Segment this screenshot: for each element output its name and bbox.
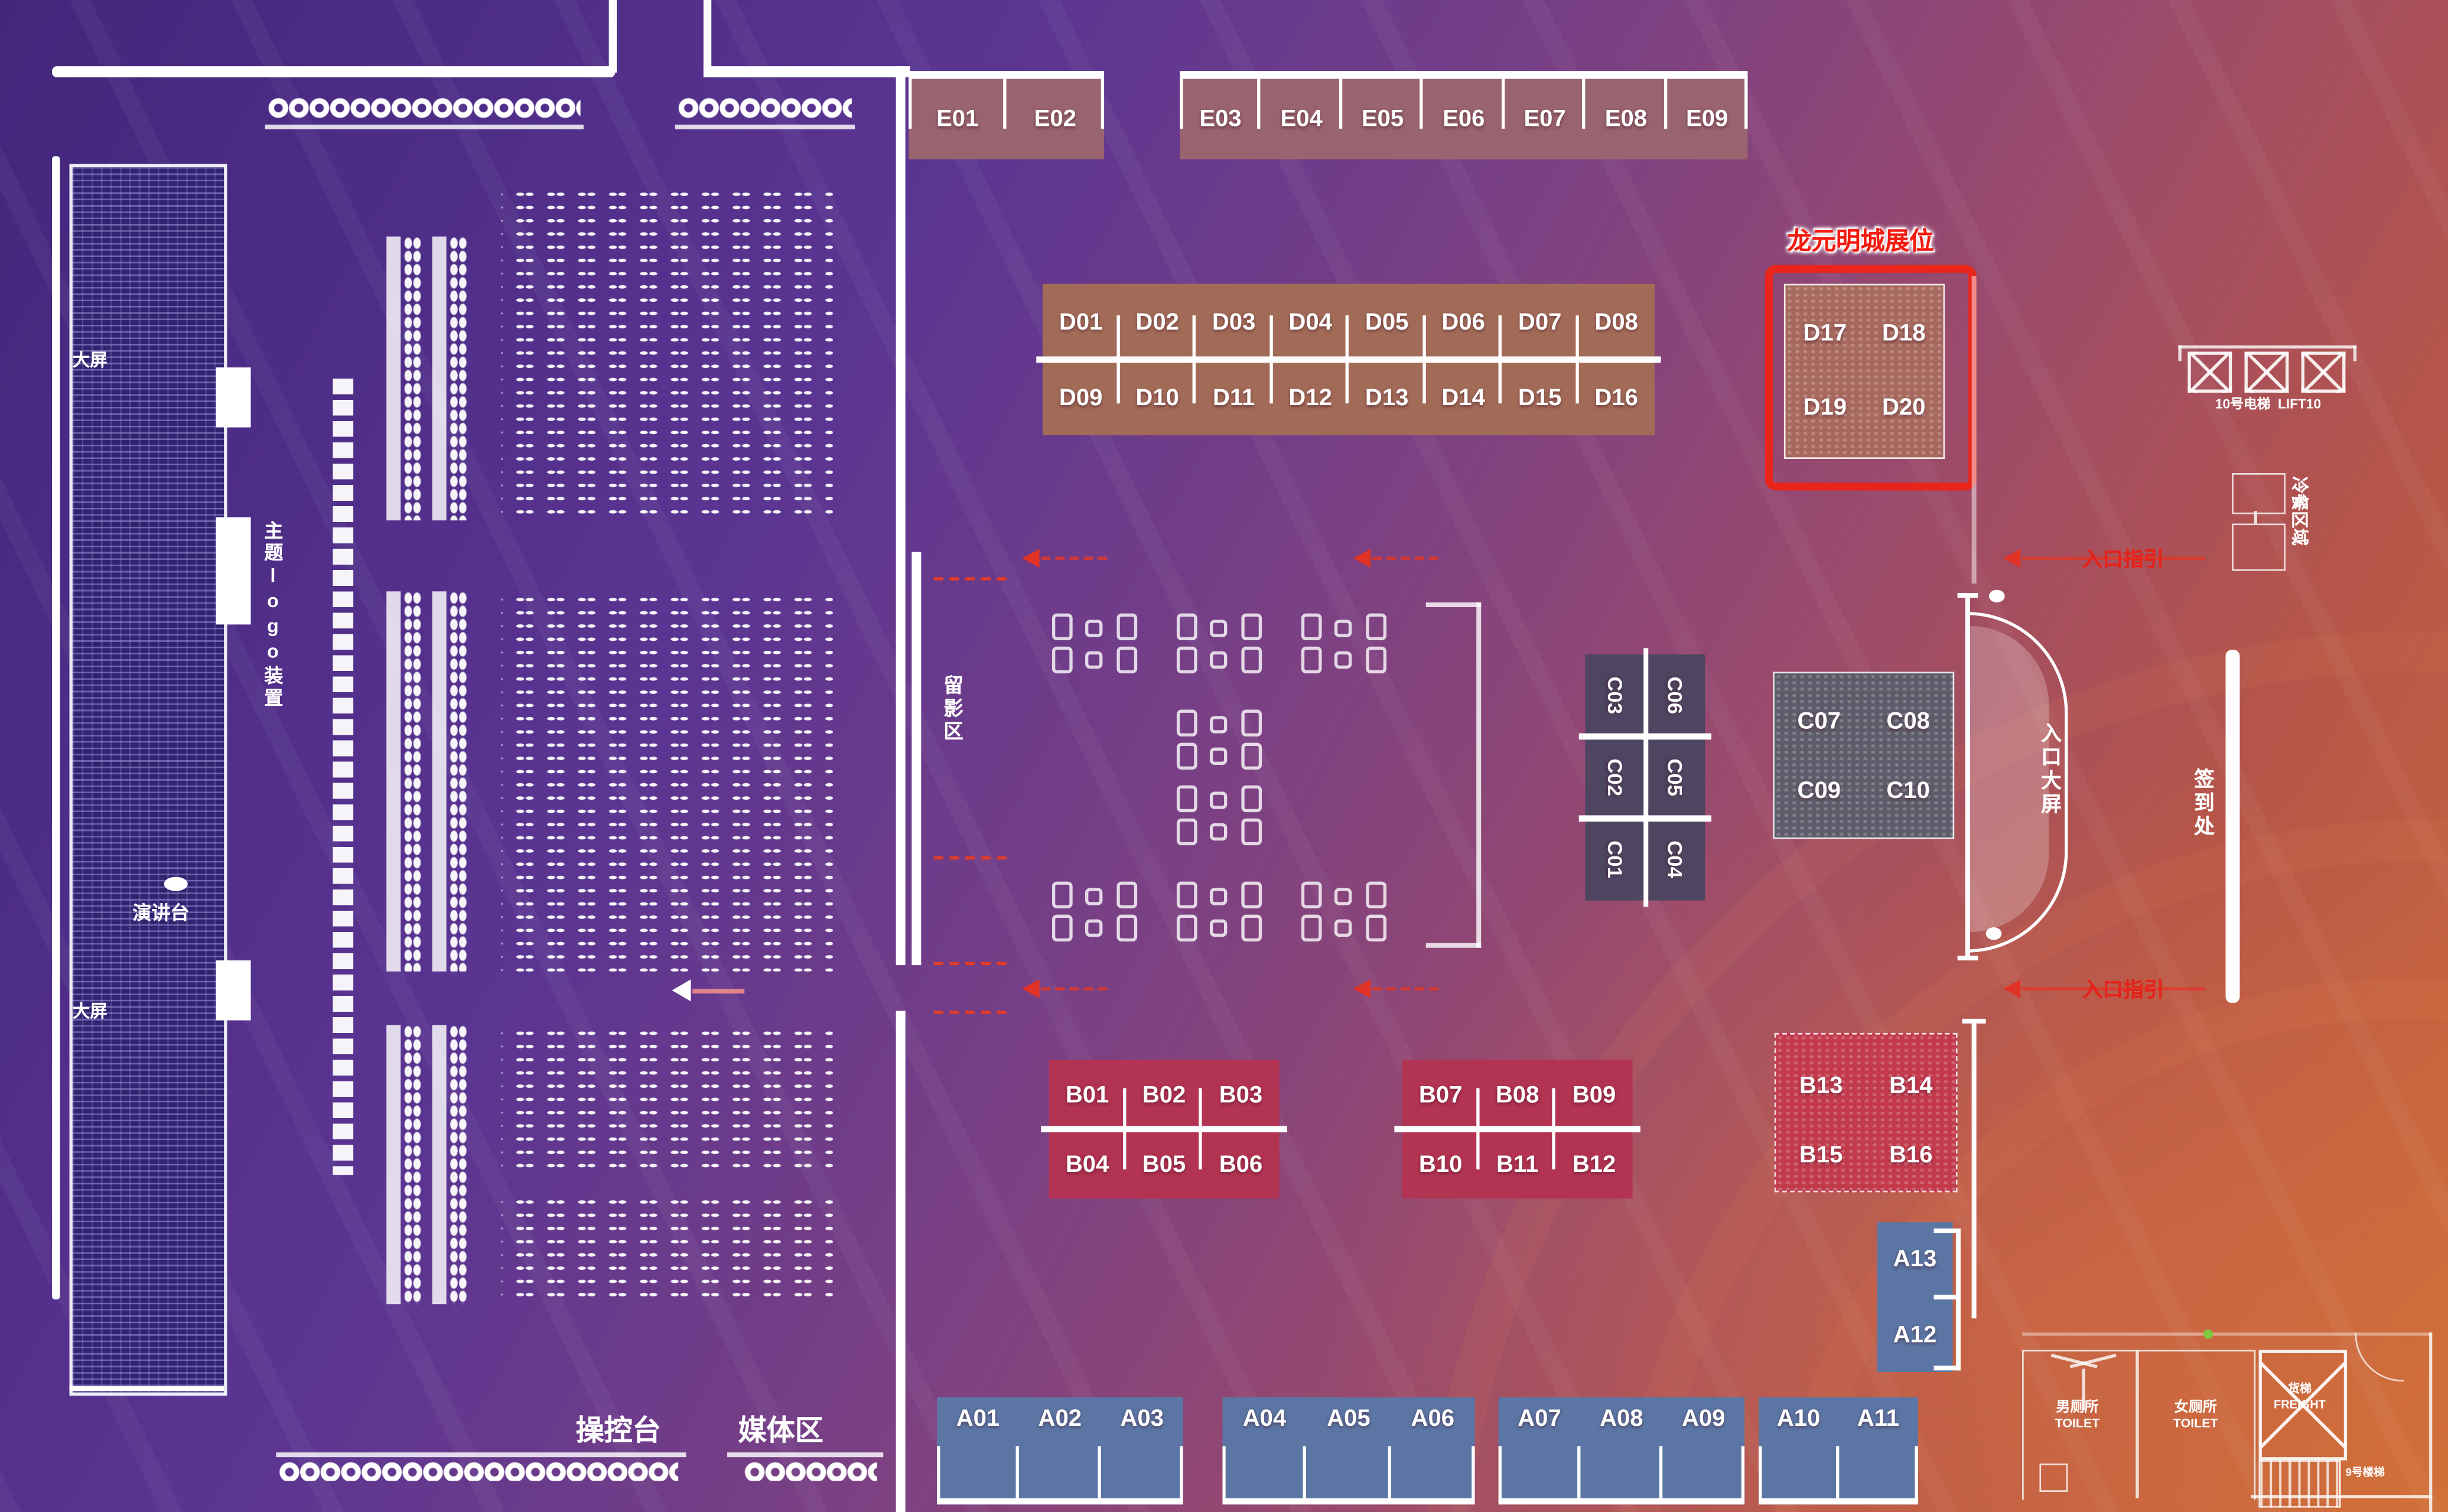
seat-oval-row xyxy=(744,1462,877,1481)
booth-D07[interactable]: D07 xyxy=(1502,284,1578,360)
entrance-screen-label: 入口大屏 xyxy=(2034,722,2065,817)
booth-C05[interactable]: C05 xyxy=(1645,737,1705,819)
table-shape xyxy=(1116,882,1137,908)
booth-C08[interactable]: C08 xyxy=(1864,689,1953,752)
booth-C09[interactable]: C09 xyxy=(1775,758,1864,822)
female-toilet-cn: 女厕所 xyxy=(2145,1397,2246,1416)
booth-block-d: D01D02D03D04D05D06D07D08 D09D10D11D12D13… xyxy=(1043,284,1655,435)
stairs-icon xyxy=(2259,1461,2341,1508)
booth-A10[interactable]: A10 xyxy=(1759,1397,1838,1498)
table-shape xyxy=(1241,786,1262,812)
seat-grid xyxy=(502,1194,833,1304)
seat-table xyxy=(432,591,447,971)
booth-E05[interactable]: E05 xyxy=(1342,79,1423,159)
toilet-fixture xyxy=(2039,1464,2068,1492)
entrance-guide-label-bottom: 入口指引 xyxy=(2082,973,2164,1003)
table-shape xyxy=(1116,915,1137,941)
booth-B16[interactable]: B16 xyxy=(1866,1123,1956,1186)
divider xyxy=(1036,356,1661,361)
table-shape xyxy=(1366,647,1386,673)
booth-label: C02 xyxy=(1603,758,1627,796)
divider xyxy=(1579,734,1711,740)
zone-bracket xyxy=(1426,943,1481,948)
booth-C03[interactable]: C03 xyxy=(1585,654,1645,737)
entrance-dot xyxy=(1989,590,2005,602)
booth-B12[interactable]: B12 xyxy=(1556,1129,1633,1198)
table-cluster xyxy=(1301,882,1386,941)
seat-grid xyxy=(502,186,833,520)
divider xyxy=(1579,815,1711,822)
divider xyxy=(1643,648,1648,907)
table-shape xyxy=(1210,823,1227,840)
booth-A07[interactable]: A07 xyxy=(1499,1397,1581,1498)
table-cluster xyxy=(1052,614,1137,673)
guide-arrow-icon xyxy=(1022,549,1039,568)
booth-D10[interactable]: D10 xyxy=(1119,360,1195,435)
a-side-bracket xyxy=(1934,1228,1961,1233)
stage-speaker-bottom xyxy=(216,960,251,1020)
booth-A01[interactable]: A01 xyxy=(937,1397,1019,1498)
podium-label: 演讲台 xyxy=(132,899,189,926)
guide-arrow-icon xyxy=(672,979,691,1001)
table-shape xyxy=(1301,647,1322,673)
guide-arrow-icon xyxy=(2003,549,2020,568)
lift-label-en: LIFT10 xyxy=(2278,396,2321,412)
male-toilet-cn: 男厕所 xyxy=(2027,1397,2128,1416)
booth-D12[interactable]: D12 xyxy=(1272,360,1349,435)
table-shape xyxy=(1210,620,1227,637)
guide-arrow-tail xyxy=(1372,557,1438,560)
freight-en: FREIGHT xyxy=(2259,1397,2341,1412)
booth-D13[interactable]: D13 xyxy=(1349,360,1425,435)
checkin-label: 签到处 xyxy=(2187,768,2218,839)
booth-A02[interactable]: A02 xyxy=(1019,1397,1101,1498)
booth-A13[interactable]: A13 xyxy=(1877,1222,1952,1297)
table-shape xyxy=(1241,743,1262,770)
table-shape xyxy=(1210,651,1227,669)
booth-A11[interactable]: A11 xyxy=(1838,1397,1918,1498)
freight-cn: 货梯 xyxy=(2259,1381,2341,1397)
door-mark xyxy=(934,962,1007,965)
booth-C07[interactable]: C07 xyxy=(1775,689,1864,752)
booth-B03[interactable]: B03 xyxy=(1203,1060,1280,1129)
table-shape xyxy=(1177,786,1197,812)
table-shape xyxy=(1210,920,1227,937)
seat-grid xyxy=(502,1025,833,1175)
table-shape xyxy=(1052,915,1073,941)
door-mark xyxy=(934,577,1007,580)
table-shape xyxy=(1241,819,1262,845)
table-shape xyxy=(1334,888,1352,905)
table-shape xyxy=(1241,710,1262,737)
table-shape xyxy=(1177,819,1197,845)
wall-segment xyxy=(1972,276,1976,584)
lift-bank-line xyxy=(2178,346,2356,348)
table-shape xyxy=(1210,716,1227,733)
booth-label: C05 xyxy=(1664,758,1687,796)
big-screen-label-top: 大屏 xyxy=(73,347,108,372)
table-shape xyxy=(1241,882,1262,908)
seat-table xyxy=(386,237,401,521)
logo-installation-box xyxy=(216,517,251,625)
door-mark xyxy=(934,1011,1007,1014)
booth-D15[interactable]: D15 xyxy=(1502,360,1578,435)
stairs-label: 9号楼梯 xyxy=(2345,1465,2385,1481)
buffet-table xyxy=(2232,473,2286,514)
booth-E01[interactable]: E01 xyxy=(909,79,1007,159)
booth-B11[interactable]: B11 xyxy=(1479,1129,1556,1198)
table-shape xyxy=(1085,620,1102,637)
a-side-bracket xyxy=(1934,1366,1961,1370)
table-shape xyxy=(1116,614,1137,640)
booth-label: C04 xyxy=(1664,840,1687,878)
booth-label: C01 xyxy=(1603,840,1627,878)
guide-arrow-icon xyxy=(2003,979,2020,998)
a-side-bracket xyxy=(1934,1295,1961,1299)
table-shape xyxy=(1052,882,1073,908)
stage-bottom-line xyxy=(69,1386,224,1391)
male-toilet-label: 男厕所 TOILET xyxy=(2027,1397,2128,1433)
photo-area-wall-inner xyxy=(912,552,920,966)
highlight-booth-label: 龙元明城展位 xyxy=(1787,222,1933,257)
booth-B14[interactable]: B14 xyxy=(1866,1054,1956,1117)
table-cluster xyxy=(1177,786,1262,845)
table-shape xyxy=(1301,614,1322,640)
entrance-wall-cap xyxy=(1958,956,1978,960)
booth-B10[interactable]: B10 xyxy=(1402,1129,1479,1198)
booth-block-c-right: C07C08 C09C10 xyxy=(1773,672,1954,839)
photo-area-label: 留影区 xyxy=(937,675,967,744)
booth-block-d17: D17D18 D19D20 xyxy=(1784,284,1945,459)
booth-block-e2: E03E04E05E06E07E08E09 xyxy=(1180,71,1747,159)
media-area-label: 媒体区 xyxy=(738,1408,823,1449)
booth-C04[interactable]: C04 xyxy=(1645,819,1705,901)
entrance-guide-label-top: 入口指引 xyxy=(2082,543,2164,573)
wall-segment xyxy=(2429,1332,2432,1512)
booth-E09[interactable]: E09 xyxy=(1666,79,1747,159)
booth-E08[interactable]: E08 xyxy=(1586,79,1666,159)
booth-block-b2: B07B08B09 B10B11B12 xyxy=(1402,1060,1633,1198)
booth-block-a3: A07A08A09 xyxy=(1499,1397,1745,1505)
booth-B13[interactable]: B13 xyxy=(1776,1054,1866,1117)
booth-A03[interactable]: A03 xyxy=(1101,1397,1183,1498)
booth-D17[interactable]: D17 xyxy=(1786,298,1865,367)
door-mark xyxy=(934,856,1007,859)
female-toilet-label: 女厕所 TOILET xyxy=(2145,1397,2246,1433)
booth-D08[interactable]: D08 xyxy=(1578,284,1654,360)
wall-top-left xyxy=(52,66,615,76)
wall-top-mid xyxy=(704,66,910,76)
booth-D01[interactable]: D01 xyxy=(1043,284,1119,360)
entrance-wall-cap xyxy=(1958,593,1978,597)
table-shape xyxy=(1177,614,1197,640)
booth-B02[interactable]: B02 xyxy=(1126,1060,1203,1129)
highlight-border[interactable]: D17D18 D19D20 xyxy=(1765,265,1977,491)
guide-arrow-tail xyxy=(1041,557,1107,560)
console-area-label: 操控台 xyxy=(576,1408,661,1449)
seat-row-line xyxy=(727,1452,883,1456)
booth-block-c-left: C03C02C01 C06C05C04 xyxy=(1585,654,1705,901)
seat-oval-row xyxy=(279,1462,679,1481)
seat-oval-row xyxy=(678,98,852,119)
wall-stub xyxy=(609,0,617,73)
table-shape xyxy=(1177,915,1197,941)
booth-B15[interactable]: B15 xyxy=(1776,1123,1866,1186)
lift-bank-line xyxy=(2178,346,2181,361)
lift-icon xyxy=(2245,351,2289,392)
table-shape xyxy=(1210,888,1227,905)
seat-table xyxy=(432,237,447,521)
seat-column xyxy=(404,237,421,521)
seat-grid xyxy=(502,591,833,971)
seat-oval-row xyxy=(268,98,581,119)
booth-block-b3: B13B14 B15B16 xyxy=(1775,1033,1958,1192)
zone-bracket xyxy=(1476,602,1481,948)
table-shape xyxy=(1334,620,1352,637)
seat-table xyxy=(386,591,401,971)
wall-stub xyxy=(704,0,711,73)
table-shape xyxy=(1177,743,1197,770)
stage-speaker-top xyxy=(216,367,251,427)
female-toilet-en: TOILET xyxy=(2145,1416,2246,1433)
booth-block-a4: A10A11 xyxy=(1759,1397,1918,1505)
zone-bracket xyxy=(1426,602,1481,607)
toilet-divider xyxy=(2136,1350,2138,1498)
guide-arrow-icon xyxy=(1353,979,1371,998)
booth-A09[interactable]: A09 xyxy=(1662,1397,1744,1498)
table-shape xyxy=(1241,915,1262,941)
booth-A12[interactable]: A12 xyxy=(1877,1297,1952,1372)
booth-B07[interactable]: B07 xyxy=(1402,1060,1479,1129)
booth-D14[interactable]: D14 xyxy=(1425,360,1501,435)
table-shape xyxy=(1177,710,1197,737)
booth-block-b1: B01B02B03 B04B05B06 xyxy=(1049,1060,1280,1198)
guide-arrow-tail xyxy=(1041,987,1107,990)
checkin-wall xyxy=(2226,650,2240,1003)
booth-E02[interactable]: E02 xyxy=(1007,79,1105,159)
booth-B01[interactable]: B01 xyxy=(1049,1060,1126,1129)
booth-block-a1: A01A02A03 xyxy=(937,1397,1183,1505)
truss-column xyxy=(333,379,353,1175)
photo-area-wall-lower xyxy=(896,1011,906,1512)
table-shape xyxy=(1334,920,1352,937)
wall-segment xyxy=(1972,1022,1977,1318)
booth-C06[interactable]: C06 xyxy=(1645,654,1705,737)
seat-column xyxy=(404,591,421,971)
table-shape xyxy=(1334,651,1352,669)
booth-E06[interactable]: E06 xyxy=(1423,79,1504,159)
booth-E07[interactable]: E07 xyxy=(1504,79,1585,159)
table-shape xyxy=(1366,915,1386,941)
buffet-connector xyxy=(2254,511,2257,523)
table-cluster xyxy=(1177,882,1262,941)
wall-left xyxy=(52,156,60,1299)
exhibition-floor-plan: 大屏 大屏 主题logo装置 演讲台 操控台 媒体区 留影区 E01E02 E0… xyxy=(0,0,2448,1512)
wall-segment xyxy=(2251,1495,2432,1498)
booth-A08[interactable]: A08 xyxy=(1580,1397,1662,1498)
booth-A05[interactable]: A05 xyxy=(1307,1397,1391,1498)
booth-D11[interactable]: D11 xyxy=(1196,360,1272,435)
booth-E03[interactable]: E03 xyxy=(1180,79,1261,159)
table-shape xyxy=(1177,647,1197,673)
lift-icon xyxy=(2187,351,2232,392)
booth-label: C06 xyxy=(1664,677,1687,715)
wall-segment xyxy=(2022,1332,2432,1335)
booth-D09[interactable]: D09 xyxy=(1043,360,1119,435)
lift-icon xyxy=(2301,351,2346,392)
booth-D16[interactable]: D16 xyxy=(1578,360,1654,435)
table-shape xyxy=(1085,920,1102,937)
booth-label: C03 xyxy=(1603,677,1627,715)
table-shape xyxy=(1210,791,1227,809)
freight-lift-label: 货梯 FREIGHT xyxy=(2259,1381,2341,1412)
wall-cap xyxy=(1962,1019,1986,1023)
table-shape xyxy=(1366,614,1386,640)
table-shape xyxy=(1052,647,1073,673)
lift-label-cn: 10号电梯 xyxy=(2215,396,2270,412)
seat-column xyxy=(450,1025,467,1305)
table-shape xyxy=(1052,614,1073,640)
booth-D20[interactable]: D20 xyxy=(1864,372,1944,441)
big-screen-label-bottom: 大屏 xyxy=(73,998,108,1024)
booth-C10[interactable]: C10 xyxy=(1864,758,1953,822)
table-shape xyxy=(1085,651,1102,669)
table-cluster xyxy=(1052,882,1137,941)
booth-B08[interactable]: B08 xyxy=(1479,1060,1556,1129)
table-shape xyxy=(1301,882,1322,908)
seat-row-line xyxy=(675,125,855,129)
booth-block-e1: E01E02 xyxy=(909,71,1104,159)
booth-D04[interactable]: D04 xyxy=(1272,284,1349,360)
guide-arrow-tail xyxy=(692,989,744,993)
booth-D06[interactable]: D06 xyxy=(1425,284,1501,360)
table-cluster xyxy=(1177,710,1262,770)
seat-column xyxy=(450,591,467,971)
seat-row-line xyxy=(265,125,584,129)
male-toilet-en: TOILET xyxy=(2027,1416,2128,1433)
booth-D05[interactable]: D05 xyxy=(1349,284,1425,360)
seat-column xyxy=(450,237,467,521)
booth-B04[interactable]: B04 xyxy=(1049,1129,1126,1198)
table-shape xyxy=(1241,614,1262,640)
table-shape xyxy=(1301,915,1322,941)
photo-area-wall-upper xyxy=(896,66,906,965)
seat-row-line xyxy=(276,1452,686,1456)
entrance-dot xyxy=(1986,927,2002,940)
table-shape xyxy=(1116,647,1137,673)
booth-D19[interactable]: D19 xyxy=(1786,372,1865,441)
logo-installation-label: 主题logo装置 xyxy=(261,520,287,709)
status-dot xyxy=(2203,1329,2213,1339)
lift-label: 10号电梯 LIFT10 xyxy=(2180,395,2356,413)
table-shape xyxy=(1210,748,1227,765)
seat-table xyxy=(432,1025,447,1305)
booth-block-a2: A04A05A06 xyxy=(1222,1397,1474,1505)
booth-D03[interactable]: D03 xyxy=(1196,284,1272,360)
lift-bank-line xyxy=(2353,346,2356,361)
table-shape xyxy=(1241,647,1262,673)
booth-A06[interactable]: A06 xyxy=(1391,1397,1474,1498)
table-cluster xyxy=(1177,614,1262,673)
divider xyxy=(1394,1126,1640,1131)
booth-B05[interactable]: B05 xyxy=(1126,1129,1203,1198)
table-shape xyxy=(1366,882,1386,908)
booth-D18[interactable]: D18 xyxy=(1864,298,1944,367)
divider xyxy=(1041,1126,1287,1131)
table-cluster xyxy=(1301,614,1386,673)
booth-B09[interactable]: B09 xyxy=(1556,1060,1633,1129)
booth-B06[interactable]: B06 xyxy=(1203,1129,1280,1198)
booth-C01[interactable]: C01 xyxy=(1585,819,1645,901)
booth-C02[interactable]: C02 xyxy=(1585,737,1645,819)
seat-table xyxy=(386,1025,401,1305)
booth-A04[interactable]: A04 xyxy=(1222,1397,1306,1498)
buffet-table xyxy=(2232,523,2286,571)
table-shape xyxy=(1177,882,1197,908)
booth-D02[interactable]: D02 xyxy=(1119,284,1195,360)
buffet-area-label: 冷餐区域 xyxy=(2287,476,2313,545)
table-shape xyxy=(1085,888,1102,905)
seat-column xyxy=(404,1025,421,1305)
podium-dot xyxy=(164,877,188,891)
guide-arrow-tail xyxy=(1372,987,1438,990)
guide-arrow-icon xyxy=(1353,549,1371,568)
guide-arrow-icon xyxy=(1022,979,1039,998)
booth-E04[interactable]: E04 xyxy=(1261,79,1342,159)
